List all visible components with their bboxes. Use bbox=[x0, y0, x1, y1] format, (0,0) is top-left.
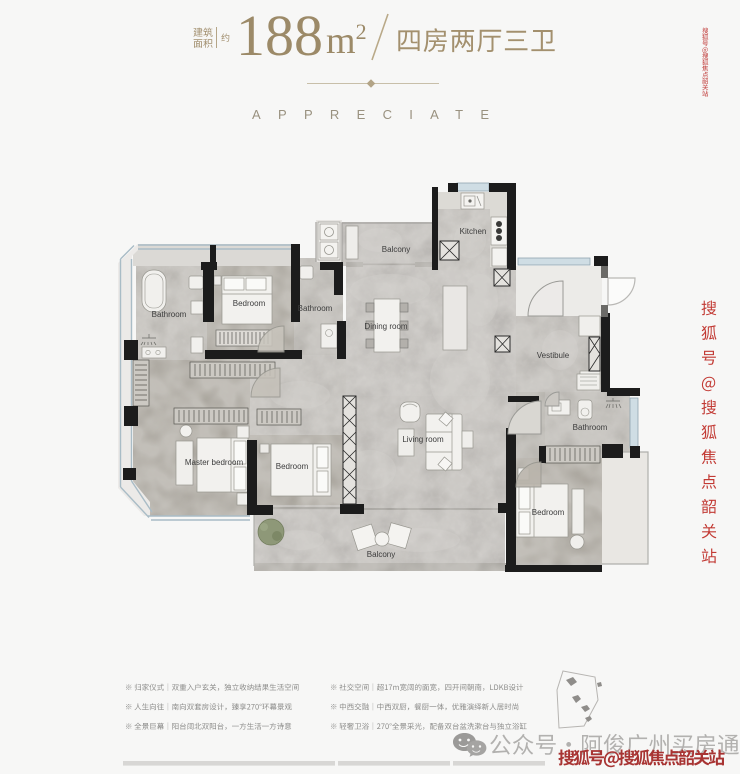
svg-text:Balcony: Balcony bbox=[382, 245, 410, 254]
svg-text:Living room: Living room bbox=[402, 435, 444, 444]
svg-text:188: 188 bbox=[236, 3, 323, 68]
svg-text:Bedroom: Bedroom bbox=[276, 462, 309, 471]
svg-text:Bedroom: Bedroom bbox=[233, 299, 266, 308]
svg-text:Dining room: Dining room bbox=[364, 322, 407, 331]
svg-text:Master bedroom: Master bedroom bbox=[185, 458, 244, 467]
svg-text:Kitchen: Kitchen bbox=[460, 227, 487, 236]
svg-text:Vestibule: Vestibule bbox=[537, 351, 570, 360]
svg-text:Bathroom: Bathroom bbox=[298, 304, 333, 313]
svg-text:Bathroom: Bathroom bbox=[573, 423, 608, 432]
svg-text:Balcony: Balcony bbox=[367, 550, 395, 559]
svg-text:Bathroom: Bathroom bbox=[152, 310, 187, 319]
svg-text:APPRECIATE: APPRECIATE bbox=[252, 107, 506, 122]
svg-text:Bedroom: Bedroom bbox=[532, 508, 565, 517]
